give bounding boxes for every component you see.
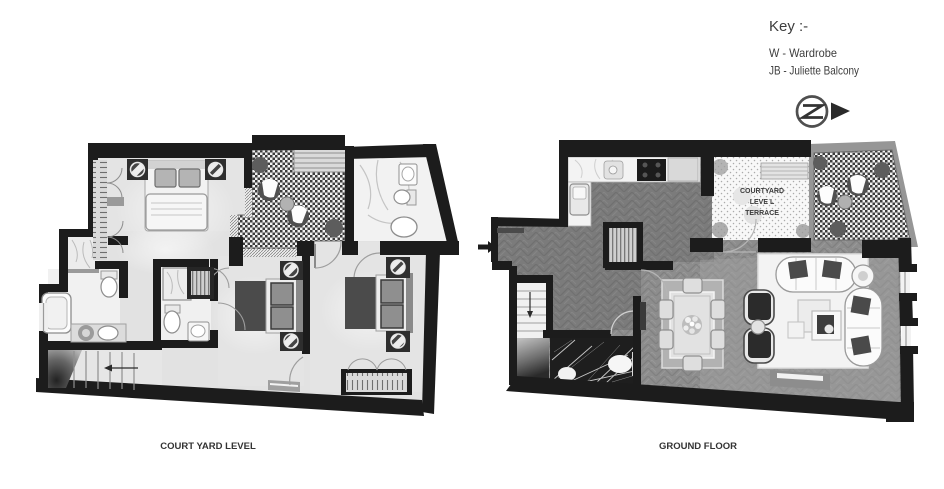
svg-text:Key :-: Key :- bbox=[769, 18, 808, 35]
svg-text:LEVE L: LEVE L bbox=[750, 199, 775, 206]
svg-text:GROUND FLOOR: GROUND FLOOR bbox=[659, 441, 737, 452]
svg-text:W - Wardrobe: W - Wardrobe bbox=[769, 46, 837, 60]
svg-text:JB - Juliette Balcony: JB - Juliette Balcony bbox=[769, 64, 859, 78]
svg-text:TERRACE: TERRACE bbox=[745, 210, 779, 217]
svg-text:COURT YARD LEVEL: COURT YARD LEVEL bbox=[160, 441, 256, 452]
svg-text:COURTYARD: COURTYARD bbox=[740, 188, 784, 195]
